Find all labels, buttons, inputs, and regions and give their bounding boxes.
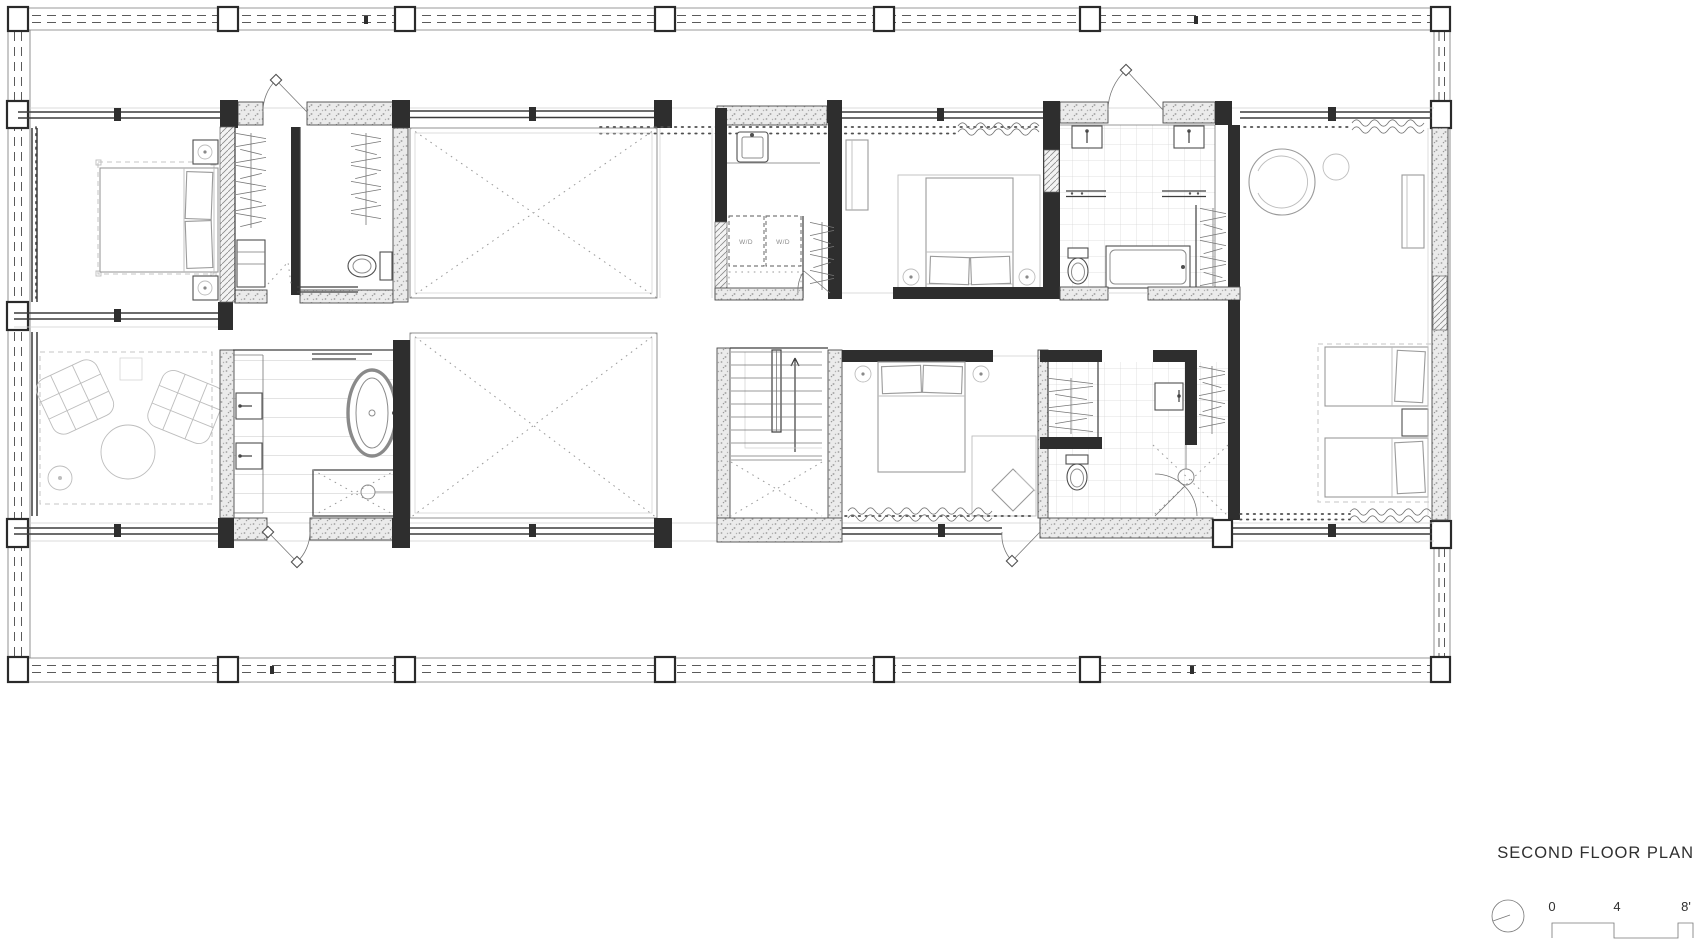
toilet-tank: [1068, 248, 1088, 258]
nightstand: [1402, 409, 1428, 436]
wall: [828, 100, 842, 299]
toilet-bowl: [1068, 258, 1088, 284]
wall-south: [1148, 287, 1240, 300]
facade-south: [14, 518, 1434, 568]
plan-title: SECOND FLOOR PLAN: [1497, 844, 1694, 862]
pillow: [971, 256, 1011, 284]
exterior-door-north-closet: [263, 74, 307, 112]
room-master-bathroom: [220, 340, 410, 518]
deck-tick: [1194, 16, 1198, 24]
wall-east-hatch: [1044, 150, 1059, 192]
deck-columns-south: [8, 657, 1450, 682]
wall-east: [393, 340, 410, 518]
wall-south-stair: [717, 518, 842, 542]
wall: [715, 288, 803, 300]
pillow: [1395, 350, 1426, 402]
void-open-to-below-north: [410, 128, 657, 298]
dryer-label: W/D: [776, 239, 790, 246]
pillow: [1395, 441, 1426, 493]
wall: [235, 290, 267, 303]
north-arrow-icon: [1492, 900, 1524, 932]
curtain-north-master: [1352, 120, 1424, 133]
scale-start: 0: [1548, 899, 1555, 914]
wardrobe: [846, 140, 868, 210]
exterior-door-south-bedroom3: [1002, 532, 1040, 567]
mullion: [938, 524, 945, 537]
toilet-bowl: [1067, 464, 1087, 490]
curtain-north-bedroom2: [958, 123, 1039, 135]
pillow: [930, 256, 970, 284]
wall-north-bath: [1163, 102, 1215, 123]
vanity-wall: [220, 350, 234, 518]
wall-north-closet: [238, 102, 263, 125]
wall-east: [1228, 350, 1240, 520]
wall: [393, 128, 408, 302]
wall-west: [1038, 350, 1048, 518]
closet-rod-hangers: [236, 133, 266, 228]
room-bedroom-3: [842, 350, 1038, 516]
mullion: [1328, 107, 1336, 121]
stairwell: [717, 348, 842, 525]
wall-east-hatch: [1433, 276, 1447, 330]
deck-tick: [270, 666, 274, 674]
mullion: [529, 524, 536, 537]
mullion: [114, 108, 121, 121]
terrace-lounge-southwest: [32, 332, 228, 516]
mullion: [114, 524, 121, 537]
curtain-south-master: [1350, 509, 1431, 522]
stair-void: [731, 462, 822, 516]
wall: [715, 222, 727, 298]
wall-east: [1228, 125, 1240, 300]
washer-label: W/D: [739, 239, 753, 246]
closet-rod-hangers: [351, 133, 381, 225]
wall-south: [893, 287, 1043, 299]
wc-west: [297, 128, 408, 302]
exterior-door-north-bath: [1108, 64, 1163, 110]
round-table: [101, 425, 155, 479]
deck-tick: [364, 16, 368, 24]
toilet-tank: [380, 252, 392, 280]
wall: [715, 108, 727, 222]
mullion: [1328, 524, 1336, 537]
toilet-bowl: [348, 255, 376, 277]
wall-east: [1043, 122, 1060, 299]
floor-plan-drawing: W/D W/D: [0, 0, 1700, 940]
corridor-opening: [1228, 300, 1240, 362]
scale-bar-shape: [1552, 923, 1693, 938]
pillow: [923, 365, 963, 393]
vanity-wall: [1185, 362, 1197, 445]
deck-tick: [1190, 666, 1194, 674]
exterior-door-south-bath: [262, 526, 310, 567]
lounge-chair: [32, 356, 117, 438]
wall-east: [828, 350, 842, 525]
room-bedroom-west: [14, 128, 233, 330]
wall-north: [842, 350, 993, 362]
lounge-chair: [144, 367, 228, 447]
wall-south-bath: [310, 518, 393, 540]
toilet-tank: [1066, 455, 1088, 464]
cabinet: [237, 240, 265, 287]
wall-north-laundry: [717, 106, 827, 125]
wall-north-closet: [307, 102, 393, 125]
scale-bar: 0 4 8': [1548, 899, 1693, 938]
tub-faucet: [1181, 265, 1185, 269]
wall: [1040, 437, 1102, 449]
floor-plan-page: W/D W/D: [0, 0, 1700, 940]
faucet: [750, 133, 754, 137]
wall: [220, 127, 235, 302]
bathtub: [1106, 246, 1190, 288]
pillow: [185, 172, 213, 220]
freestanding-tub: [348, 370, 396, 456]
wall-west: [717, 348, 730, 518]
stair-direction-arrow: [791, 358, 799, 452]
scale-mid: 4: [1613, 899, 1620, 914]
scale-end: 8': [1681, 899, 1691, 914]
deck-south-dashes: [32, 666, 1432, 673]
wall: [291, 127, 300, 295]
pillow: [185, 221, 213, 269]
wall: [1040, 350, 1102, 362]
room-bedroom-2: [842, 122, 1060, 299]
mullion: [937, 108, 944, 121]
wall-south-bath2: [1040, 518, 1213, 538]
door-swing-dotted: [268, 262, 291, 284]
title-block: SECOND FLOOR PLAN 0 4 8': [1492, 844, 1694, 938]
round-lounge-chair: [1249, 149, 1315, 215]
side-table: [1323, 154, 1349, 180]
console: [1402, 175, 1424, 248]
curtain-south-bedroom3: [848, 508, 992, 521]
room-bathroom-south: [1038, 350, 1240, 520]
deck-north-dashes: [32, 16, 1432, 23]
void-open-to-below-south: [410, 128, 712, 518]
west-glazing-lower: [32, 332, 37, 516]
shelf: [729, 272, 801, 290]
wall: [1153, 350, 1197, 362]
room-laundry: W/D W/D: [715, 100, 842, 300]
deck-columns-north: [8, 7, 1450, 31]
wall-north-bath: [1060, 102, 1108, 123]
west-glazing: [32, 128, 37, 302]
wall-south: [1060, 287, 1108, 300]
mullion: [529, 107, 536, 121]
rug: [972, 436, 1036, 516]
ottoman: [992, 469, 1034, 511]
pillow: [882, 365, 922, 393]
